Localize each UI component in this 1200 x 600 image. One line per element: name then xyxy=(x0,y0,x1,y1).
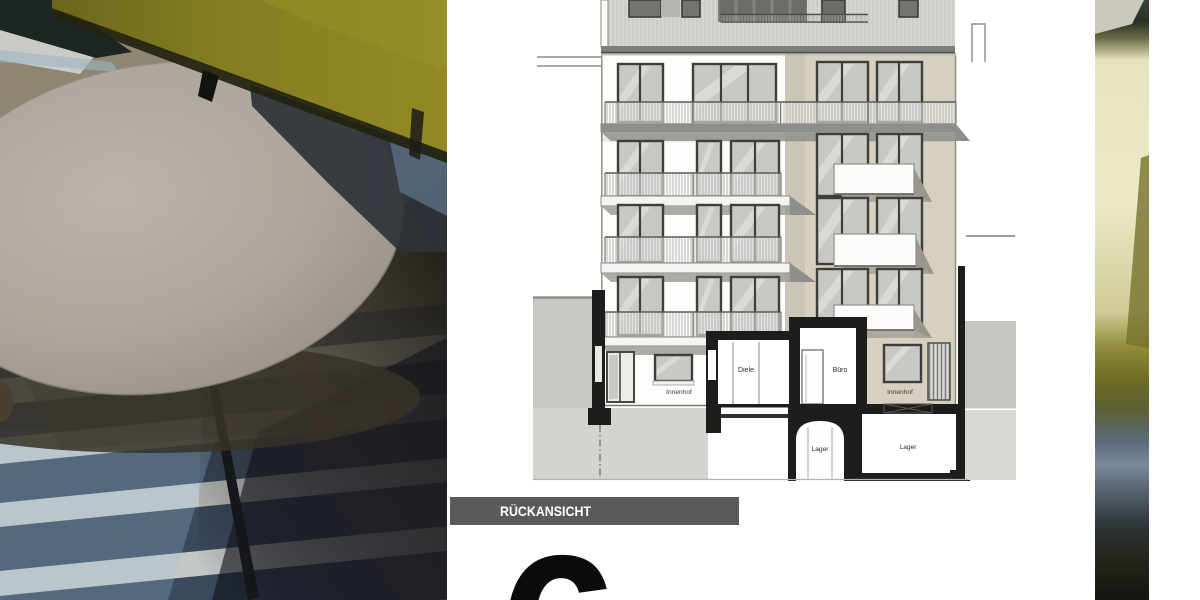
svg-text:Innenhof: Innenhof xyxy=(666,389,692,396)
svg-text:Innenhof: Innenhof xyxy=(887,389,913,396)
svg-text:Büro: Büro xyxy=(833,367,848,374)
svg-text:Lager: Lager xyxy=(812,446,830,453)
svg-text:6: 6 xyxy=(499,510,619,600)
svg-text:Lager: Lager xyxy=(900,444,918,451)
svg-text:Diele: Diele xyxy=(738,367,754,374)
